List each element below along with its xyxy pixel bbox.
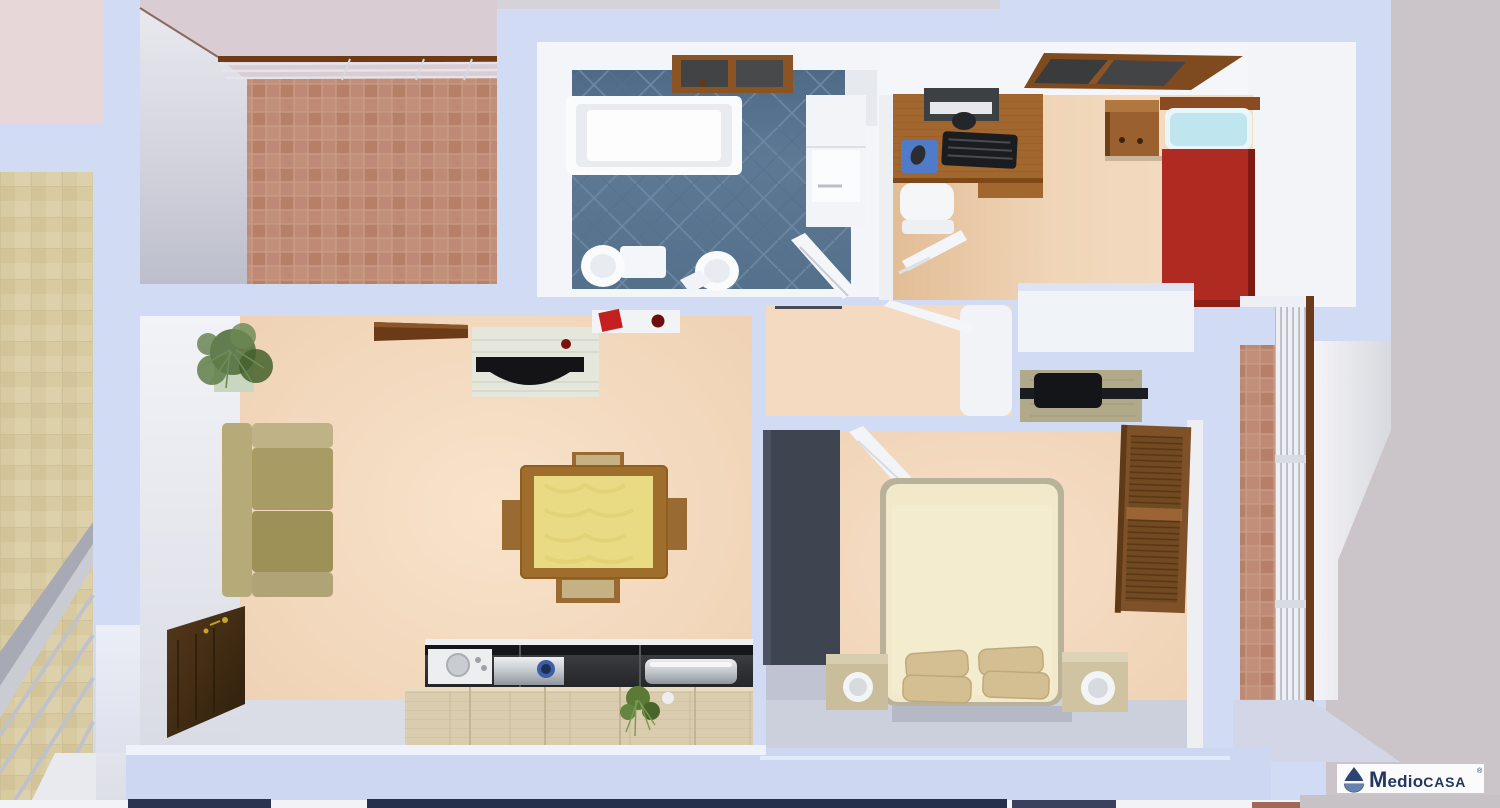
- svg-text:®: ®: [1477, 767, 1483, 775]
